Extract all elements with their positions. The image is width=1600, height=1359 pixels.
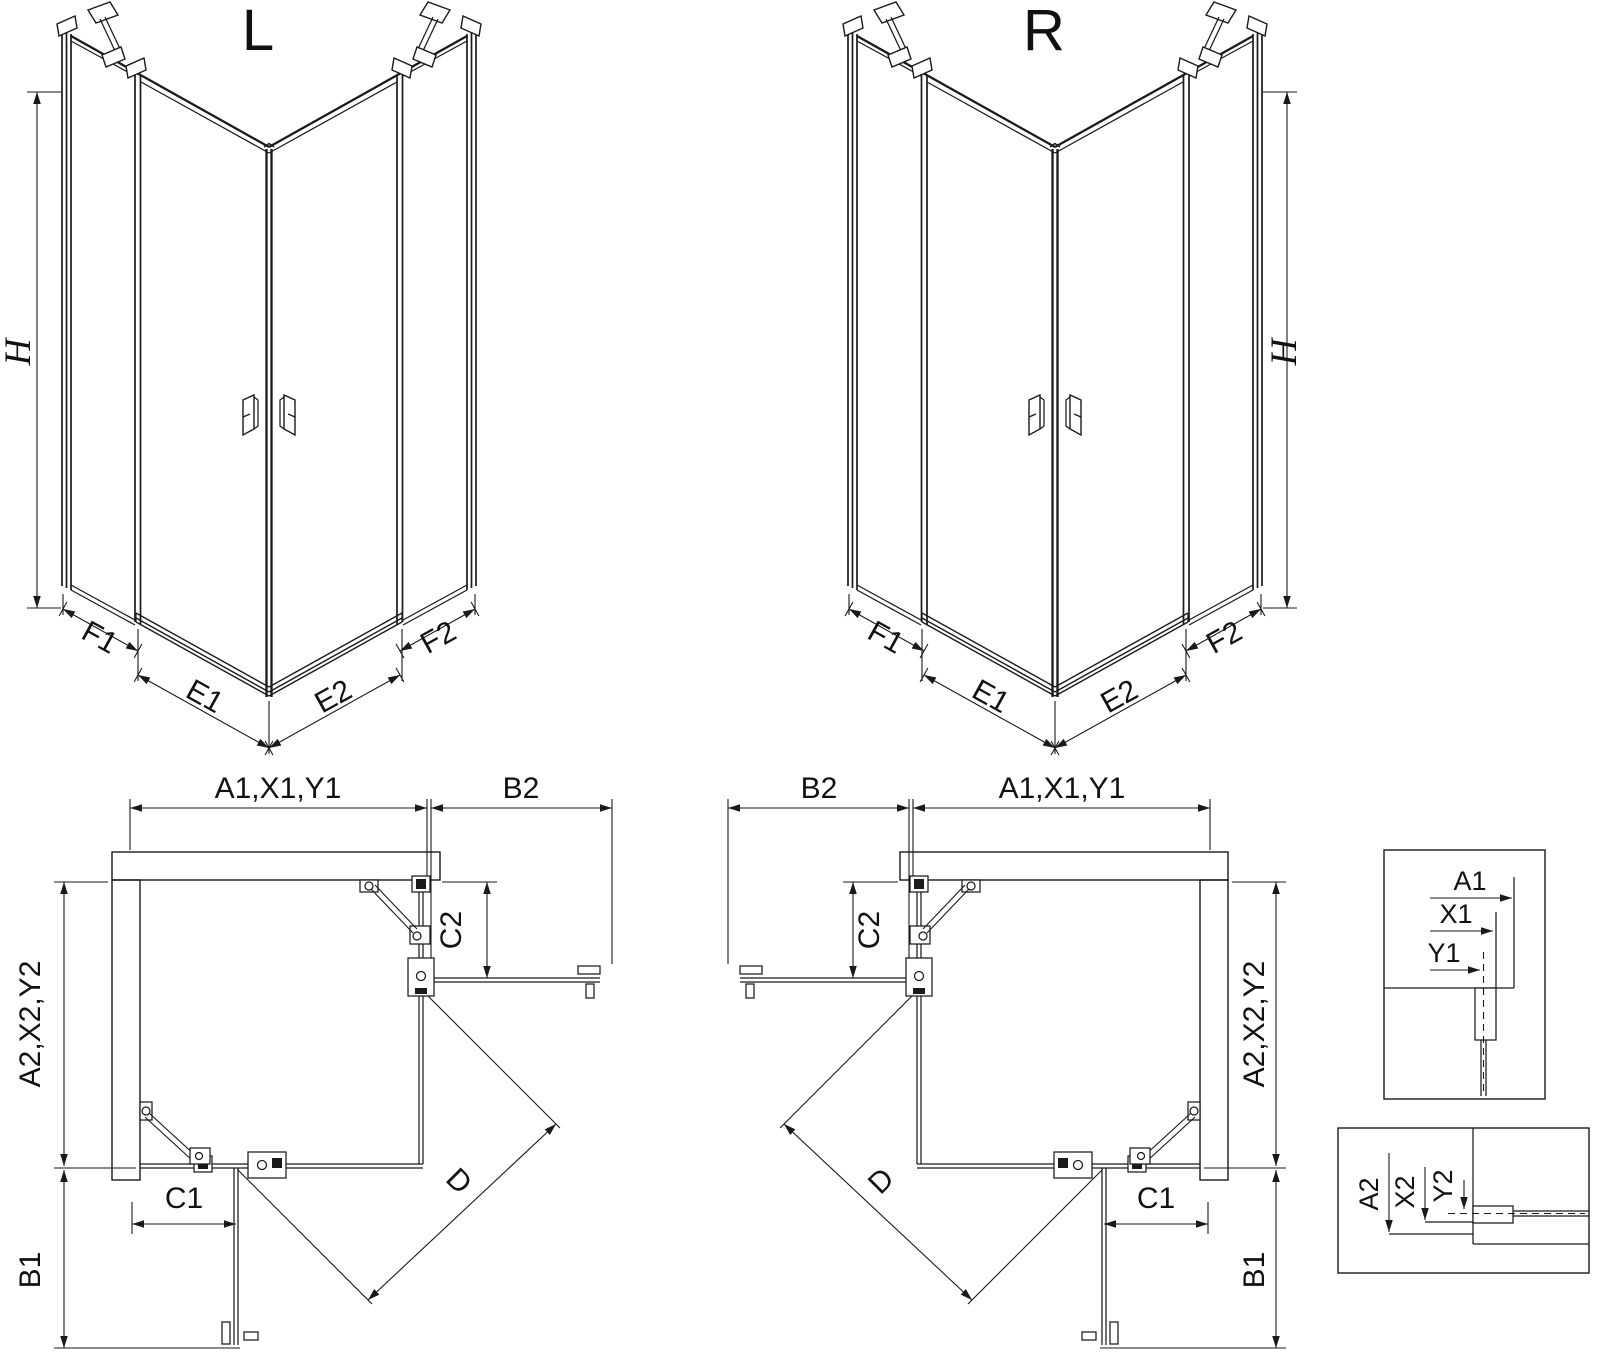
detail-box-depth: A2 X2 Y2	[1338, 1128, 1589, 1273]
plan-view-right: B2 A1,X1,Y1 C2 A2,X2,Y2 C1 B1 D	[728, 772, 1286, 1348]
wall-profile-section	[1475, 988, 1496, 1040]
label-height-right: H	[1264, 336, 1305, 366]
label-detail-a1: A1	[1453, 866, 1486, 896]
iso-view-left: L H F1 E1 E2 F2	[0, 0, 481, 755]
label-width-left-plan: A1,X1,Y1	[215, 772, 342, 805]
plan-geometry-right-mirrored	[728, 799, 1286, 1348]
label-fixed-near-right: F2	[1201, 615, 1248, 661]
wall-profile-section-2	[1473, 1206, 1513, 1223]
label-detail-x1: X1	[1439, 899, 1472, 929]
label-door-far-right: E1	[967, 673, 1015, 720]
label-fixed-top-left-plan: C2	[435, 911, 468, 949]
label-detail-y1: Y1	[1427, 938, 1460, 968]
label-return-top-left-plan: B2	[503, 772, 540, 805]
label-return-side-left-plan: B1	[14, 1252, 47, 1289]
label-diagonal-left-plan: D	[439, 1162, 478, 1201]
label-fixed-far-left: F2	[415, 615, 462, 661]
wall-side-hatched-right	[1200, 880, 1228, 1180]
label-door-near-left: E1	[181, 673, 229, 720]
iso-view-right: R H F2 E2 E1 F1	[843, 0, 1305, 755]
technical-drawing-page: L H F1 E1 E2 F2 R H F2 E2 E1 F1 A1,X1,Y1…	[0, 0, 1600, 1359]
wall-side-hatched	[112, 880, 140, 1180]
label-fixed-top-right-plan: C2	[853, 911, 886, 949]
label-detail-x2: X2	[1390, 1175, 1420, 1208]
label-variant-right: R	[1023, 0, 1065, 63]
detail-box-width: A1 X1 Y1	[1384, 850, 1545, 1099]
label-fixed-far-right: F1	[862, 615, 909, 661]
shower-enclosure-drawing: L H F1 E1 E2 F2 R H F2 E2 E1 F1 A1,X1,Y1…	[0, 0, 1600, 1359]
wall-top-hatched	[112, 852, 440, 880]
plan-geometry-left	[54, 799, 612, 1348]
label-return-top-right-plan: B2	[801, 772, 838, 805]
label-depth-left-plan: A2,X2,Y2	[14, 961, 47, 1088]
label-height-left: H	[0, 336, 39, 366]
label-door-near-right: E2	[1095, 673, 1143, 720]
wall-top-hatched-right	[900, 852, 1228, 880]
label-depth-right-plan: A2,X2,Y2	[1238, 961, 1271, 1088]
label-detail-a2: A2	[1354, 1177, 1384, 1210]
label-fixed-near-left: F1	[76, 615, 123, 661]
label-fixed-side-right-plan: C1	[1137, 1182, 1175, 1215]
label-door-far-left: E2	[309, 673, 357, 720]
label-detail-y2: Y2	[1428, 1169, 1458, 1202]
label-return-side-right-plan: B1	[1238, 1252, 1271, 1289]
plan-view-left: A1,X1,Y1 B2 C2 A2,X2,Y2 C1 B1 D	[14, 772, 612, 1348]
label-diagonal-right-plan: D	[862, 1162, 901, 1201]
label-width-right-plan: A1,X1,Y1	[999, 772, 1126, 805]
label-fixed-side-left-plan: C1	[165, 1182, 203, 1215]
label-variant-left: L	[242, 0, 274, 63]
